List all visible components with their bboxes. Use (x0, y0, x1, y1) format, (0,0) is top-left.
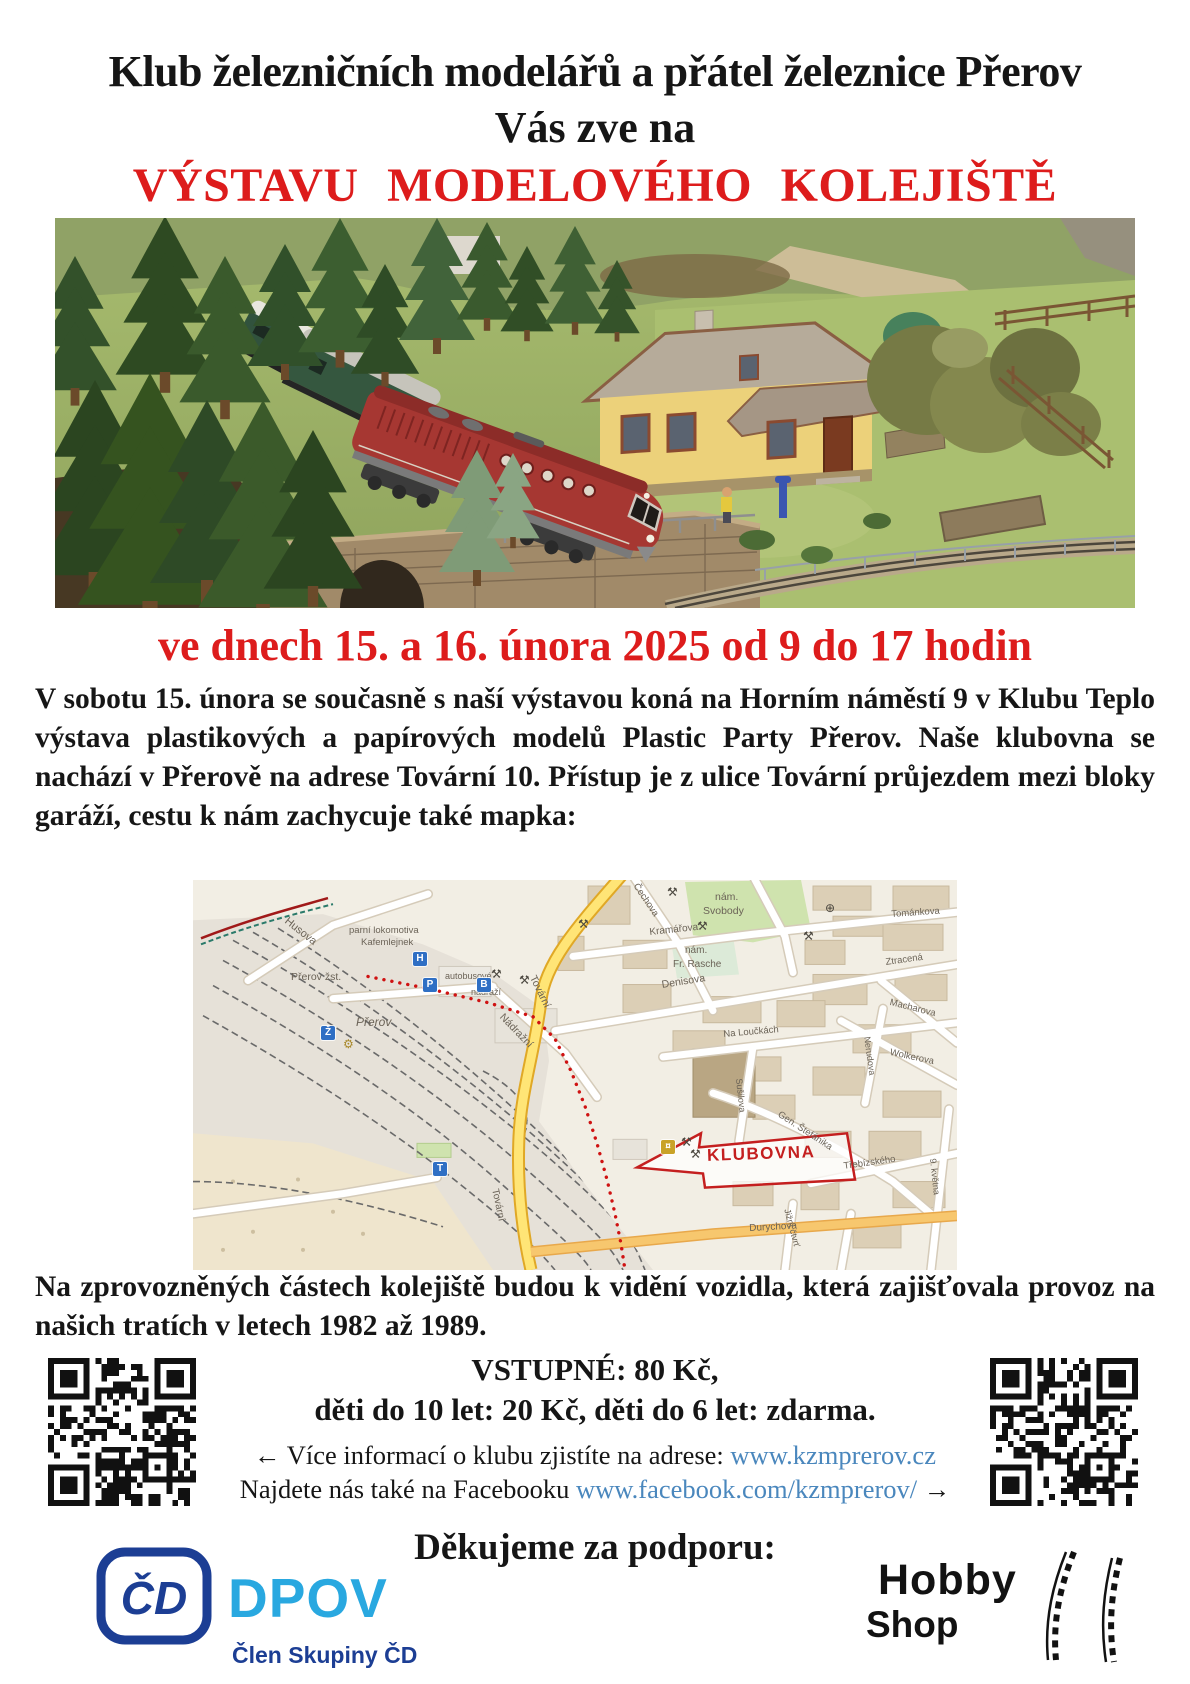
map-label: nám. (685, 946, 707, 956)
bus-icon: B (477, 978, 491, 992)
restaurant-icon: ⚒ (519, 974, 530, 986)
dpov-wordmark: DPOV (228, 1566, 388, 1630)
globe-icon: ⊕ (825, 902, 835, 914)
map-label: parní lokomotiva (349, 926, 419, 936)
facebook-arrow: → (917, 1474, 950, 1504)
website-info-line: ← Více informací o klubu zjistíte na adr… (0, 1440, 1190, 1471)
svg-text:ČD: ČD (121, 1572, 187, 1624)
facebook-link[interactable]: www.facebook.com/kzmprerov/ (576, 1474, 917, 1504)
map-image: KLUBOVNA Husovaparní lokomotivaKafemlejn… (193, 880, 957, 1270)
klubovna-callout: KLUBOVNA (707, 1142, 816, 1166)
restaurant-icon: ⚒ (667, 886, 678, 898)
map-label: nám. (715, 892, 738, 903)
gear-icon: ⚙ (343, 1038, 354, 1050)
map-label: Přerov žst. (291, 972, 341, 983)
poster-page: Klub železničních modelářů a přátel žele… (0, 0, 1190, 1684)
event-date-line: ve dnech 15. a 16. února 2025 od 9 do 17… (0, 620, 1190, 671)
website-info-prefix: ← Více informací o klubu zjistíte na adr… (254, 1440, 730, 1470)
vehicles-paragraph: Na zprovozněných částech kolejiště budou… (35, 1268, 1155, 1346)
club-title: Klub železničních modelářů a přátel žele… (0, 46, 1190, 97)
map-label: Fr. Rasche (673, 960, 721, 970)
facebook-info-line: Najdete nás také na Facebooku www.facebo… (0, 1474, 1190, 1505)
map-label: Svobody (703, 906, 744, 917)
hotel-icon: H (413, 952, 427, 966)
restaurant-icon: ⚒ (697, 920, 708, 932)
exhibition-title: VÝSTAVU MODELOVÉHO KOLEJIŠTĚ (0, 158, 1190, 213)
intro-paragraph: V sobotu 15. února se současně s naší vý… (35, 680, 1155, 836)
restaurant-icon: ⚒ (578, 918, 589, 930)
hobbyshop-word1: Hobby (878, 1556, 1017, 1605)
station-icon: Ž (321, 1026, 335, 1040)
hobbyshop-logo: Hobby Shop (856, 1548, 1156, 1668)
restaurant-icon: ⚒ (491, 968, 502, 980)
hobbyshop-track-icon (1014, 1548, 1154, 1666)
restaurant-icon: ⚒ (803, 930, 814, 942)
admission-children: děti do 10 let: 20 Kč, děti do 6 let: zd… (0, 1392, 1190, 1428)
parking-icon: P (423, 978, 437, 992)
atm-icon: ¤ (661, 1140, 675, 1154)
tram-icon: T (433, 1162, 447, 1176)
layout-photo-illustration (55, 218, 1135, 608)
restaurant-icon: ⚒ (690, 1148, 701, 1160)
cd-logo: ČD (95, 1546, 213, 1646)
admission-heading: VSTUPNÉ: 80 Kč, (0, 1352, 1190, 1388)
cd-member-caption: Člen Skupiny ČD (232, 1642, 417, 1669)
map-label: Kafemlejnek (361, 938, 413, 948)
hobbyshop-word2: Shop (866, 1604, 958, 1646)
website-link[interactable]: www.kzmprerov.cz (730, 1440, 936, 1470)
facebook-info-prefix: Najdete nás také na Facebooku (240, 1474, 576, 1504)
layout-photo (55, 218, 1135, 608)
map-label: Přerov (356, 1016, 391, 1028)
invitation-line: Vás zve na (0, 102, 1190, 153)
